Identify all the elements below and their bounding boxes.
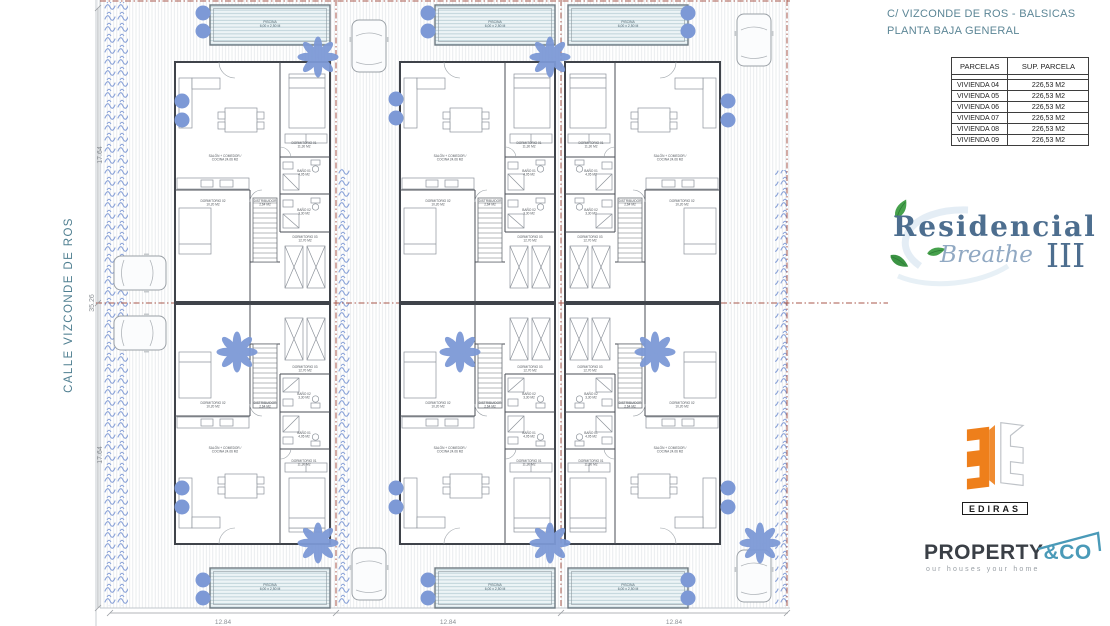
bush (175, 113, 190, 128)
table-row: VIVIENDA 05226,53 M2 (952, 91, 1089, 102)
room-label: BAÑO 023,30 M2 (297, 391, 311, 400)
table-row: VIVIENDA 07226,53 M2 (952, 113, 1089, 124)
bush (681, 24, 696, 39)
tree (217, 332, 258, 373)
bush (421, 6, 436, 21)
cell-superficie: 226,53 M2 (1008, 91, 1089, 102)
cell-parcela: VIVIENDA 08 (952, 124, 1008, 135)
tree (740, 523, 781, 564)
table-row: VIVIENDA 08226,53 M2 (952, 124, 1089, 135)
room-label: SALÓN + COMEDOR /COCINA 24,06 M2 (654, 153, 687, 162)
room-label: BAÑO 023,30 M2 (584, 207, 598, 216)
bush (196, 24, 211, 39)
vivienda-unit (175, 304, 330, 544)
bush (681, 6, 696, 21)
dim-left-bottom: 17.64 (97, 446, 104, 464)
dim-left-top: 17.64 (97, 146, 104, 164)
tree (530, 523, 571, 564)
tree (298, 523, 339, 564)
cell-parcela: VIVIENDA 06 (952, 102, 1008, 113)
roof-icon (1036, 529, 1110, 553)
bush (721, 500, 736, 515)
tree (635, 332, 676, 373)
dim-bottom-3: 12.84 (666, 619, 683, 626)
cell-parcela: VIVIENDA 09 (952, 135, 1008, 146)
bush (175, 94, 190, 109)
room-label: BAÑO 023,30 M2 (522, 391, 536, 400)
cell-superficie: 226,53 M2 (1008, 80, 1089, 91)
property-wordmark: PROPERTY (924, 541, 1044, 564)
dim-left-total: 35.26 (89, 294, 96, 312)
bush (721, 113, 736, 128)
room-label: BAÑO 023,30 M2 (584, 391, 598, 400)
room-label: SALÓN + COMEDOR /COCINA 24,06 M2 (654, 445, 687, 454)
dim-bottom-1: 12.84 (215, 619, 232, 626)
vegetation-strip-left (104, 2, 128, 606)
cell-superficie: 226,53 M2 (1008, 135, 1089, 146)
sheet-title-address: C/ VIZCONDE DE ROS - BALSICAS (887, 8, 1075, 20)
property-co-logo: PROPERTY&CO our houses your home (924, 541, 1092, 573)
room-label: BAÑO 014,05 M2 (297, 168, 311, 177)
vivienda-unit (400, 304, 555, 544)
residencial-breathe-logo: Residencial Breathe III (880, 194, 1110, 289)
parked-car (735, 550, 774, 602)
table-row: VIVIENDA 04226,53 M2 (952, 80, 1089, 91)
room-label: BAÑO 023,30 M2 (522, 207, 536, 216)
bush (175, 500, 190, 515)
tree (298, 37, 339, 78)
parked-car (114, 314, 166, 353)
parcelas-table: PARCELAS SUP. PARCELA VIVIENDA 04226,53 … (951, 57, 1089, 146)
bush (196, 591, 211, 606)
table-row: VIVIENDA 09226,53 M2 (952, 135, 1089, 146)
tree (530, 37, 571, 78)
bush (389, 111, 404, 126)
room-label: BAÑO 014,05 M2 (297, 430, 311, 439)
title-block-panel: C/ VIZCONDE DE ROS - BALSICAS PLANTA BAJ… (880, 0, 1110, 626)
parked-car (114, 254, 166, 293)
bush (421, 591, 436, 606)
units-layer (175, 5, 720, 608)
street-label: CALLE VIZCONDE DE ROS (63, 217, 75, 393)
room-label: SALÓN + COMEDOR /COCINA 24,06 M2 (209, 445, 242, 454)
room-label: BAÑO 014,05 M2 (522, 168, 536, 177)
ediras-emblem-icon (964, 416, 1026, 494)
bush (721, 94, 736, 109)
sheet-title-plan: PLANTA BAJA GENERAL (887, 25, 1020, 37)
room-label: BAÑO 014,05 M2 (522, 430, 536, 439)
bush (421, 573, 436, 588)
cell-superficie: 226,53 M2 (1008, 113, 1089, 124)
bush (681, 573, 696, 588)
bush (421, 24, 436, 39)
cell-parcela: VIVIENDA 04 (952, 80, 1008, 91)
bush (196, 573, 211, 588)
bush (681, 591, 696, 606)
bush (389, 92, 404, 107)
bush (721, 481, 736, 496)
cell-superficie: 226,53 M2 (1008, 102, 1089, 113)
parked-car (350, 548, 389, 600)
table-header-superficie: SUP. PARCELA (1008, 58, 1089, 75)
parcelas-table-body: VIVIENDA 04226,53 M2VIVIENDA 05226,53 M2… (952, 80, 1089, 146)
phase-numeral: III (1046, 236, 1085, 275)
room-label: BAÑO 014,05 M2 (584, 430, 598, 439)
cell-parcela: VIVIENDA 05 (952, 91, 1008, 102)
room-label: SALÓN + COMEDOR /COCINA 24,06 M2 (209, 153, 242, 162)
cell-superficie: 226,53 M2 (1008, 124, 1089, 135)
bush (389, 481, 404, 496)
table-header-parcelas: PARCELAS (952, 58, 1008, 75)
property-tagline: our houses your home (926, 566, 1092, 573)
vivienda-unit (175, 62, 330, 302)
dim-bottom-2: 12.84 (440, 619, 457, 626)
room-label: BAÑO 023,30 M2 (297, 207, 311, 216)
ediras-logo: EDIRAS (950, 416, 1040, 517)
vivienda-unit (565, 62, 720, 302)
bush (175, 481, 190, 496)
table-row: VIVIENDA 06226,53 M2 (952, 102, 1089, 113)
vegetation-strip-mid (338, 168, 350, 606)
cell-parcela: VIVIENDA 07 (952, 113, 1008, 124)
room-label: SALÓN + COMEDOR /COCINA 24,06 M2 (434, 153, 467, 162)
bush (389, 500, 404, 515)
tree (440, 332, 481, 373)
parked-car (350, 20, 389, 72)
breathe-wordmark: Breathe (940, 242, 1033, 268)
room-label: BAÑO 014,05 M2 (584, 168, 598, 177)
parked-car (735, 14, 774, 66)
ediras-wordmark: EDIRAS (962, 502, 1028, 515)
site-plan-sheet: PISCINA6,00 x 2,50 MPISCINA6,00 x 2,50 M… (0, 0, 1110, 626)
room-label: SALÓN + COMEDOR /COCINA 24,06 M2 (434, 445, 467, 454)
vivienda-unit (400, 62, 555, 302)
bush (196, 6, 211, 21)
